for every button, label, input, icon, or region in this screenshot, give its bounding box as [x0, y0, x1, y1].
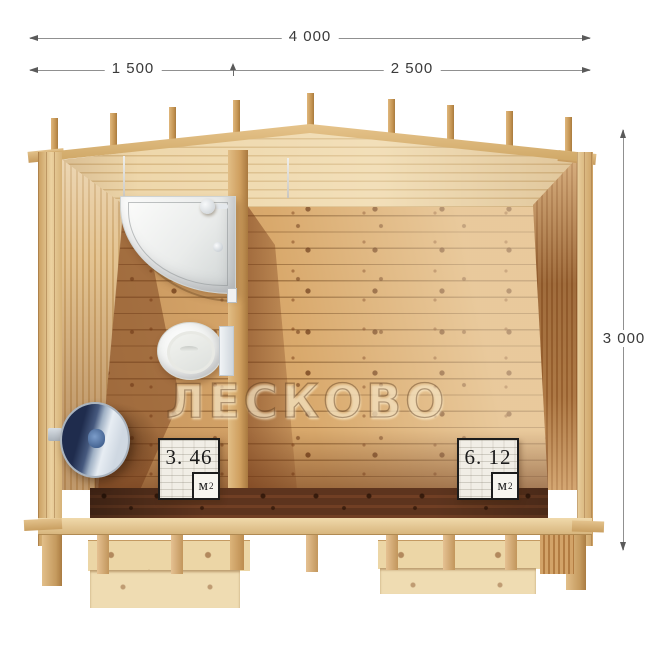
- hanging-cable: [123, 156, 125, 200]
- area-unit: м2: [192, 472, 220, 500]
- toilet-tank: [219, 326, 234, 376]
- arrow-down-icon: [620, 542, 626, 551]
- step-platform-left-top: [88, 540, 250, 571]
- dimension-label-right-width: 2 500: [384, 60, 441, 77]
- right-wall-top: [577, 152, 593, 546]
- hanging-cable: [287, 158, 289, 198]
- arrow-up-icon: [230, 63, 236, 70]
- front-door-jamb-right: [540, 532, 574, 574]
- area-value: 6. 12: [459, 445, 517, 470]
- unit-letter: м: [199, 478, 209, 495]
- front-stud: [386, 534, 398, 570]
- dimension-label-depth: 3 000: [596, 330, 650, 347]
- unit-letter: м: [498, 478, 508, 495]
- paper-holder: [227, 288, 237, 303]
- arrow-right-icon: [582, 67, 591, 73]
- watermark-text: ЛЕСКОВО: [166, 374, 486, 432]
- step-platform-right-bottom: [380, 568, 536, 594]
- arrow-left-icon: [29, 35, 38, 41]
- step-platform-left-bottom: [90, 570, 240, 608]
- dimension-label-total-width: 4 000: [282, 28, 339, 45]
- toilet-seat: [167, 331, 215, 374]
- unit-sup: 2: [209, 481, 214, 491]
- front-ledge-left: [24, 518, 63, 531]
- area-badge-main-room: 6. 12 м2: [457, 438, 519, 500]
- front-stud: [97, 534, 109, 574]
- dimension-label-left-width: 1 500: [105, 60, 162, 77]
- area-badge-washroom: 3. 46 м2: [158, 438, 220, 500]
- front-corner-post-left: [42, 534, 62, 586]
- dimension-line-depth: 3 000: [623, 130, 624, 550]
- toilet-lid-groove: [180, 346, 198, 352]
- dimension-line-split-width: 1 500 2 500: [30, 70, 590, 71]
- unit-sup: 2: [508, 481, 513, 491]
- partition-foot-post: [230, 534, 244, 570]
- left-wall-top: [38, 152, 62, 546]
- front-stud: [505, 534, 517, 570]
- area-unit: м2: [491, 472, 519, 500]
- shower-knob: [213, 242, 223, 252]
- shower-head-icon: [200, 199, 215, 214]
- arrow-up-icon: [620, 129, 626, 138]
- area-value: 3. 46: [160, 445, 218, 470]
- front-wall-top: [38, 518, 592, 535]
- front-stud: [443, 534, 455, 570]
- front-stud: [306, 534, 318, 572]
- front-ledge-right: [572, 520, 604, 532]
- arrow-right-icon: [582, 35, 591, 41]
- arrow-left-icon: [29, 67, 38, 73]
- dimension-line-total-width: 4 000: [30, 38, 590, 39]
- dimension-mid-tick: [233, 65, 234, 76]
- front-stud: [171, 534, 183, 574]
- cabin-floor-plan: 4 000 1 500 2 500 3 000: [0, 0, 650, 650]
- water-heater-knob: [88, 429, 105, 448]
